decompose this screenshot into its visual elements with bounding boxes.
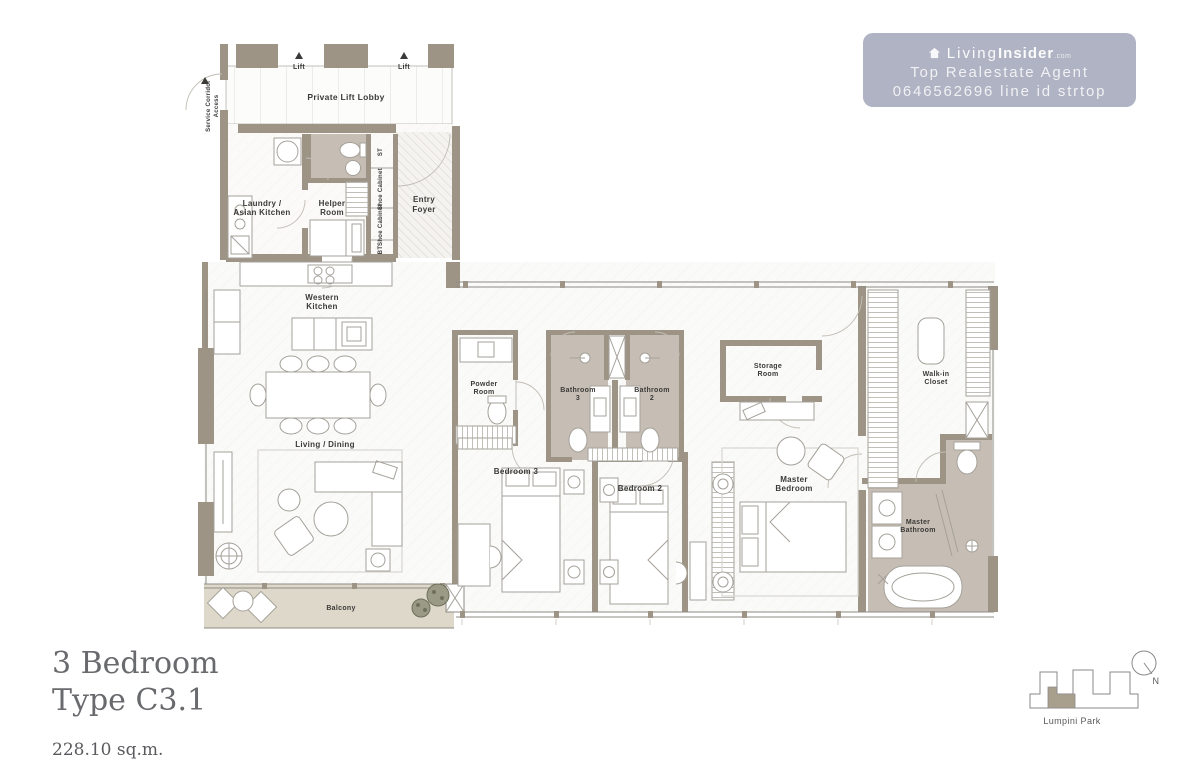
room-label-bathroom-3: Bathroom: [560, 387, 595, 394]
bathtub-icon: [878, 566, 962, 608]
room-label-powder-room: Room: [473, 389, 494, 396]
plant-icon: [412, 599, 430, 617]
watermark-line-3: 0646562696 line id strtop: [863, 83, 1136, 100]
planter-icon: [713, 474, 733, 494]
room-label-bathroom-2: Bathroom: [634, 387, 669, 394]
room-label-laundry: Asian Kitchen: [233, 208, 290, 217]
sink-icon: [346, 161, 361, 176]
room-label-master-bathroom: Bathroom: [900, 527, 935, 534]
title-block: 3 Bedroom Type C3.1 228.10 sq.m.: [52, 645, 219, 760]
room-label-entry-foyer: Entry: [413, 195, 435, 204]
room-label-helper-room: Room: [320, 208, 344, 217]
walk-in-closet-furniture: [918, 318, 944, 364]
room-label-service-corridor: Access: [214, 94, 220, 117]
room-label-storage-room: Room: [757, 371, 778, 378]
room-label-storage-room: Storage: [754, 363, 782, 370]
room-label-balcony: Balcony: [326, 605, 355, 612]
toilet-icon: [641, 428, 659, 452]
toilet-icon: [340, 143, 360, 158]
toilet-icon: [488, 400, 506, 424]
park-label: Lumpini Park: [1043, 716, 1100, 726]
watermark: LivingInsider.com Top Realestate Agent 0…: [863, 33, 1136, 107]
room-label-helper-room: Helper: [319, 199, 346, 208]
room-label-shoe-cabinet: Shoe Cabinet: [378, 204, 384, 246]
watermark-logo-row: LivingInsider.com: [863, 45, 1136, 62]
bed-icon: [502, 468, 560, 592]
room-label-service-corridor: Service Corridor: [206, 80, 212, 132]
room-label-private-lift-lobby: Private Lift Lobby: [307, 92, 384, 102]
room-label-bedroom-2: Bedroom 2: [618, 484, 663, 493]
kitchen-island-icon: [292, 318, 372, 350]
room-label-st: ST: [378, 148, 384, 156]
watermark-line-2: Top Realestate Agent: [863, 64, 1136, 81]
room-label-powder-room: Powder: [470, 381, 497, 388]
brand-bold: Insider: [998, 45, 1054, 62]
building-key: Lumpini Park N: [1030, 651, 1159, 726]
room-label-bedroom-3: Bedroom 3: [494, 467, 539, 476]
nightstand: [600, 478, 618, 502]
desk: [458, 524, 490, 586]
nightstand: [600, 560, 618, 584]
room-label-lift: Lift: [398, 64, 410, 71]
north-label: N: [1153, 676, 1160, 686]
vanity-icon: [872, 492, 902, 524]
room-label-master-bedroom: Master: [780, 475, 808, 484]
nightstand: [564, 560, 584, 584]
plan-title-line-1: 3 Bedroom: [52, 645, 219, 682]
bench-icon: [918, 318, 944, 364]
room-label-master-bedroom: Bedroom: [775, 484, 812, 493]
room-label-laundry: Laundry /: [243, 199, 282, 208]
house-logo-icon: [928, 47, 941, 59]
plant-icon: [427, 584, 449, 606]
shaft-icon: [609, 336, 625, 378]
room-label-shoe-cabinet: Shoe Cabinet: [378, 168, 384, 210]
room-label-bathroom-2: 2: [650, 395, 654, 402]
bed-icon: [610, 486, 668, 604]
room-label-lift: Lift: [293, 64, 305, 71]
desk: [690, 542, 706, 600]
toilet-icon: [569, 428, 587, 452]
lift-up-arrow-icon: [400, 52, 408, 59]
floor-plan-page: Service Corridor Access Lift Lift Privat…: [0, 0, 1200, 777]
room-label-western-kitchen: Western: [305, 293, 339, 302]
room-label-bt: BT: [378, 246, 384, 255]
unit-highlight: [1048, 687, 1075, 708]
planter-icon: [713, 572, 733, 592]
plan-title-line-2: Type C3.1: [52, 682, 219, 719]
shaft-icon: [966, 402, 988, 438]
room-label-walk-in-closet: Walk-in: [923, 371, 950, 378]
building-outline: [1030, 670, 1138, 708]
side-table-icon: [278, 489, 300, 511]
room-label-bathroom-3: 3: [576, 395, 580, 402]
lift-up-arrow-icon: [295, 52, 303, 59]
room-label-walk-in-closet: Closet: [924, 379, 948, 386]
room-label-entry-foyer: Foyer: [412, 205, 435, 214]
north-compass-icon: N: [1132, 651, 1159, 686]
bed-icon: [740, 502, 846, 572]
balcony-table-icon: [233, 591, 253, 611]
plan-area: 228.10 sq.m.: [52, 740, 219, 760]
coffee-table-icon: [314, 502, 348, 536]
brand-suffix: .com: [1054, 53, 1071, 60]
nightstand: [564, 470, 584, 494]
brand-prefix: Living: [947, 45, 998, 62]
room-label-living-dining: Living / Dining: [295, 440, 355, 449]
round-table-icon: [777, 437, 805, 465]
room-label-master-bathroom: Master: [906, 519, 930, 526]
room-label-western-kitchen: Kitchen: [306, 302, 337, 311]
vanity-icon: [872, 526, 902, 558]
